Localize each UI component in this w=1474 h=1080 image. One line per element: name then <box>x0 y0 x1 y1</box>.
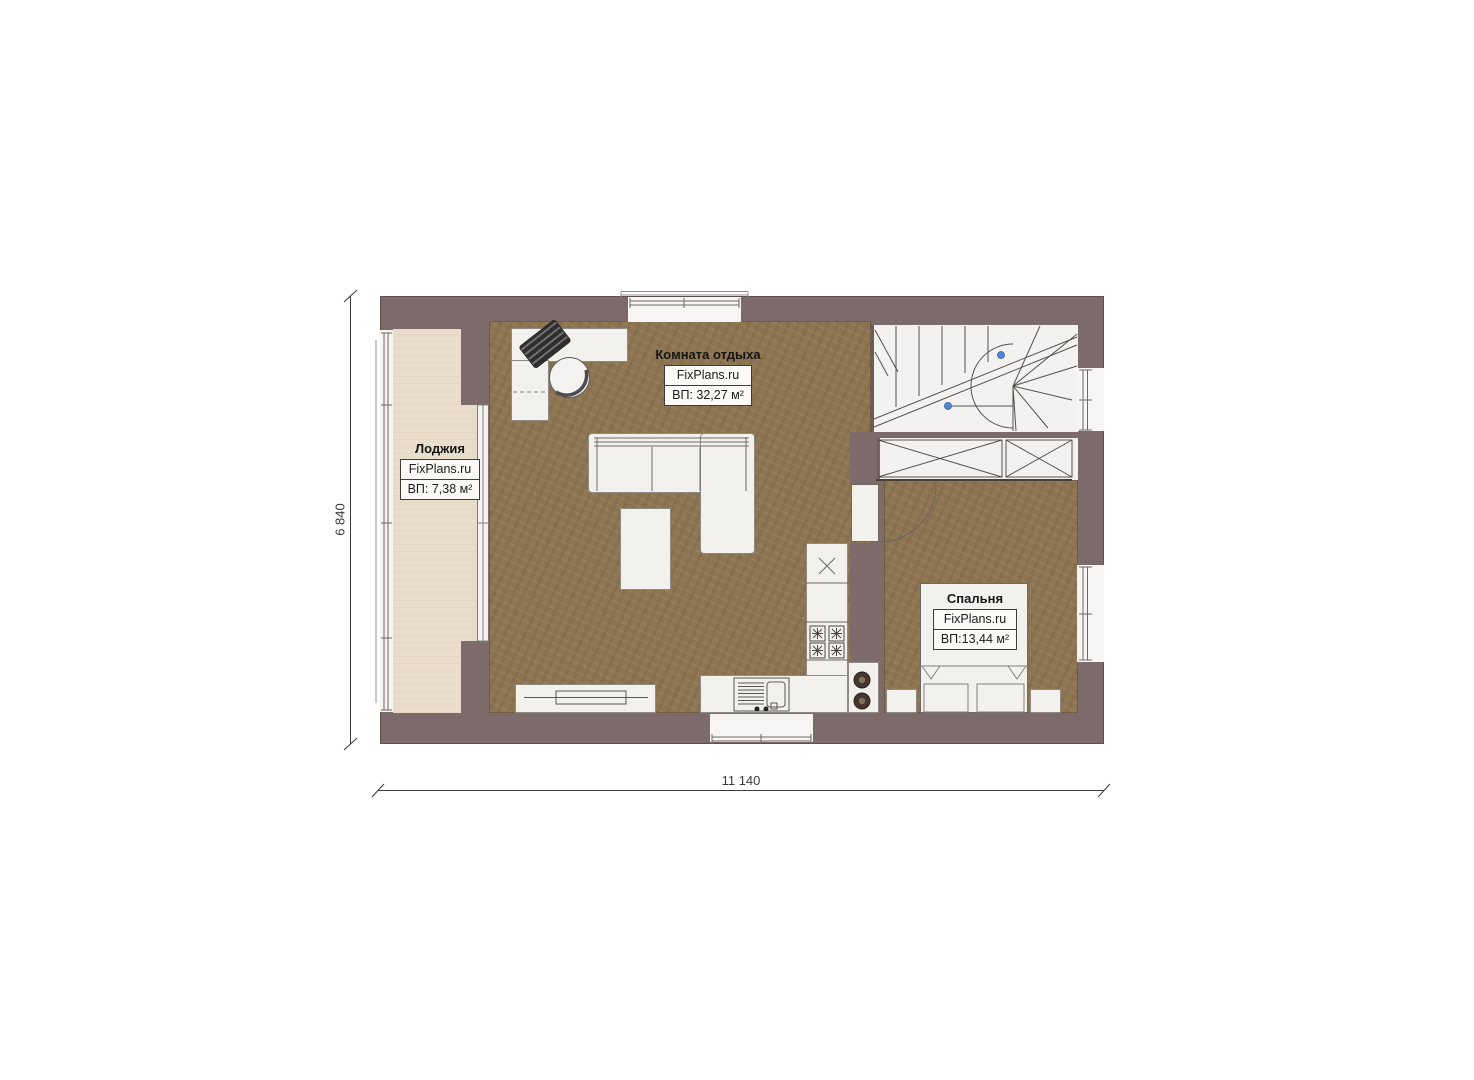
appliance <box>848 662 879 713</box>
sofa-chaise <box>700 433 755 554</box>
office-chair <box>549 357 590 398</box>
area-label: ВП: 32,27 м² <box>665 385 751 405</box>
window-top <box>628 297 741 322</box>
area-label: ВП: 7,38 м² <box>401 479 480 499</box>
room-label-rest-room: Комната отдыха FixPlans.ru ВП: 32,27 м² <box>650 347 766 406</box>
tv-stand <box>515 684 656 713</box>
wall-segment-under-stairs <box>850 432 1078 438</box>
room-title: Комната отдыха <box>655 347 760 362</box>
kitchen-counter-bottom <box>700 675 848 713</box>
area-label: ВП:13,44 м² <box>934 629 1016 649</box>
wall-segment-divider-top <box>850 432 880 484</box>
dimension-height-label: 6 840 <box>333 496 348 544</box>
room-info-box: FixPlans.ru ВП:13,44 м² <box>933 609 1017 650</box>
window-stairs <box>1077 368 1104 431</box>
floor-plan: Комната отдыха FixPlans.ru ВП: 32,27 м² … <box>0 0 1474 1080</box>
desk-return <box>511 360 549 421</box>
room-title: Спальня <box>947 591 1003 606</box>
window-bedroom <box>1077 565 1104 662</box>
brand-label: FixPlans.ru <box>665 366 751 385</box>
window-bottom <box>710 714 813 742</box>
coffee-table <box>620 508 671 590</box>
nightstand-left <box>886 689 917 713</box>
room-title: Лоджия <box>415 441 465 456</box>
window-loggia <box>380 330 393 712</box>
nightstand-right <box>1030 689 1061 713</box>
wardrobe-area <box>873 437 1078 480</box>
wall-segment-divider-bottom <box>850 543 880 663</box>
door-leaf <box>851 484 879 542</box>
room-label-loggia: Лоджия FixPlans.ru ВП: 7,38 м² <box>395 441 485 500</box>
room-label-bedroom: Спальня FixPlans.ru ВП:13,44 м² <box>927 591 1023 650</box>
brand-label: FixPlans.ru <box>934 610 1016 629</box>
room-info-box: FixPlans.ru ВП: 32,27 м² <box>664 365 752 406</box>
dimension-width-label: 11 140 <box>709 773 773 788</box>
wall-segment-loggia-bottom <box>461 641 489 713</box>
room-info-box: FixPlans.ru ВП: 7,38 м² <box>400 459 481 500</box>
wall-segment-loggia-top <box>461 321 489 405</box>
kitchen-counter-column <box>806 543 848 676</box>
brand-label: FixPlans.ru <box>401 460 480 479</box>
staircase-area <box>873 325 1078 432</box>
